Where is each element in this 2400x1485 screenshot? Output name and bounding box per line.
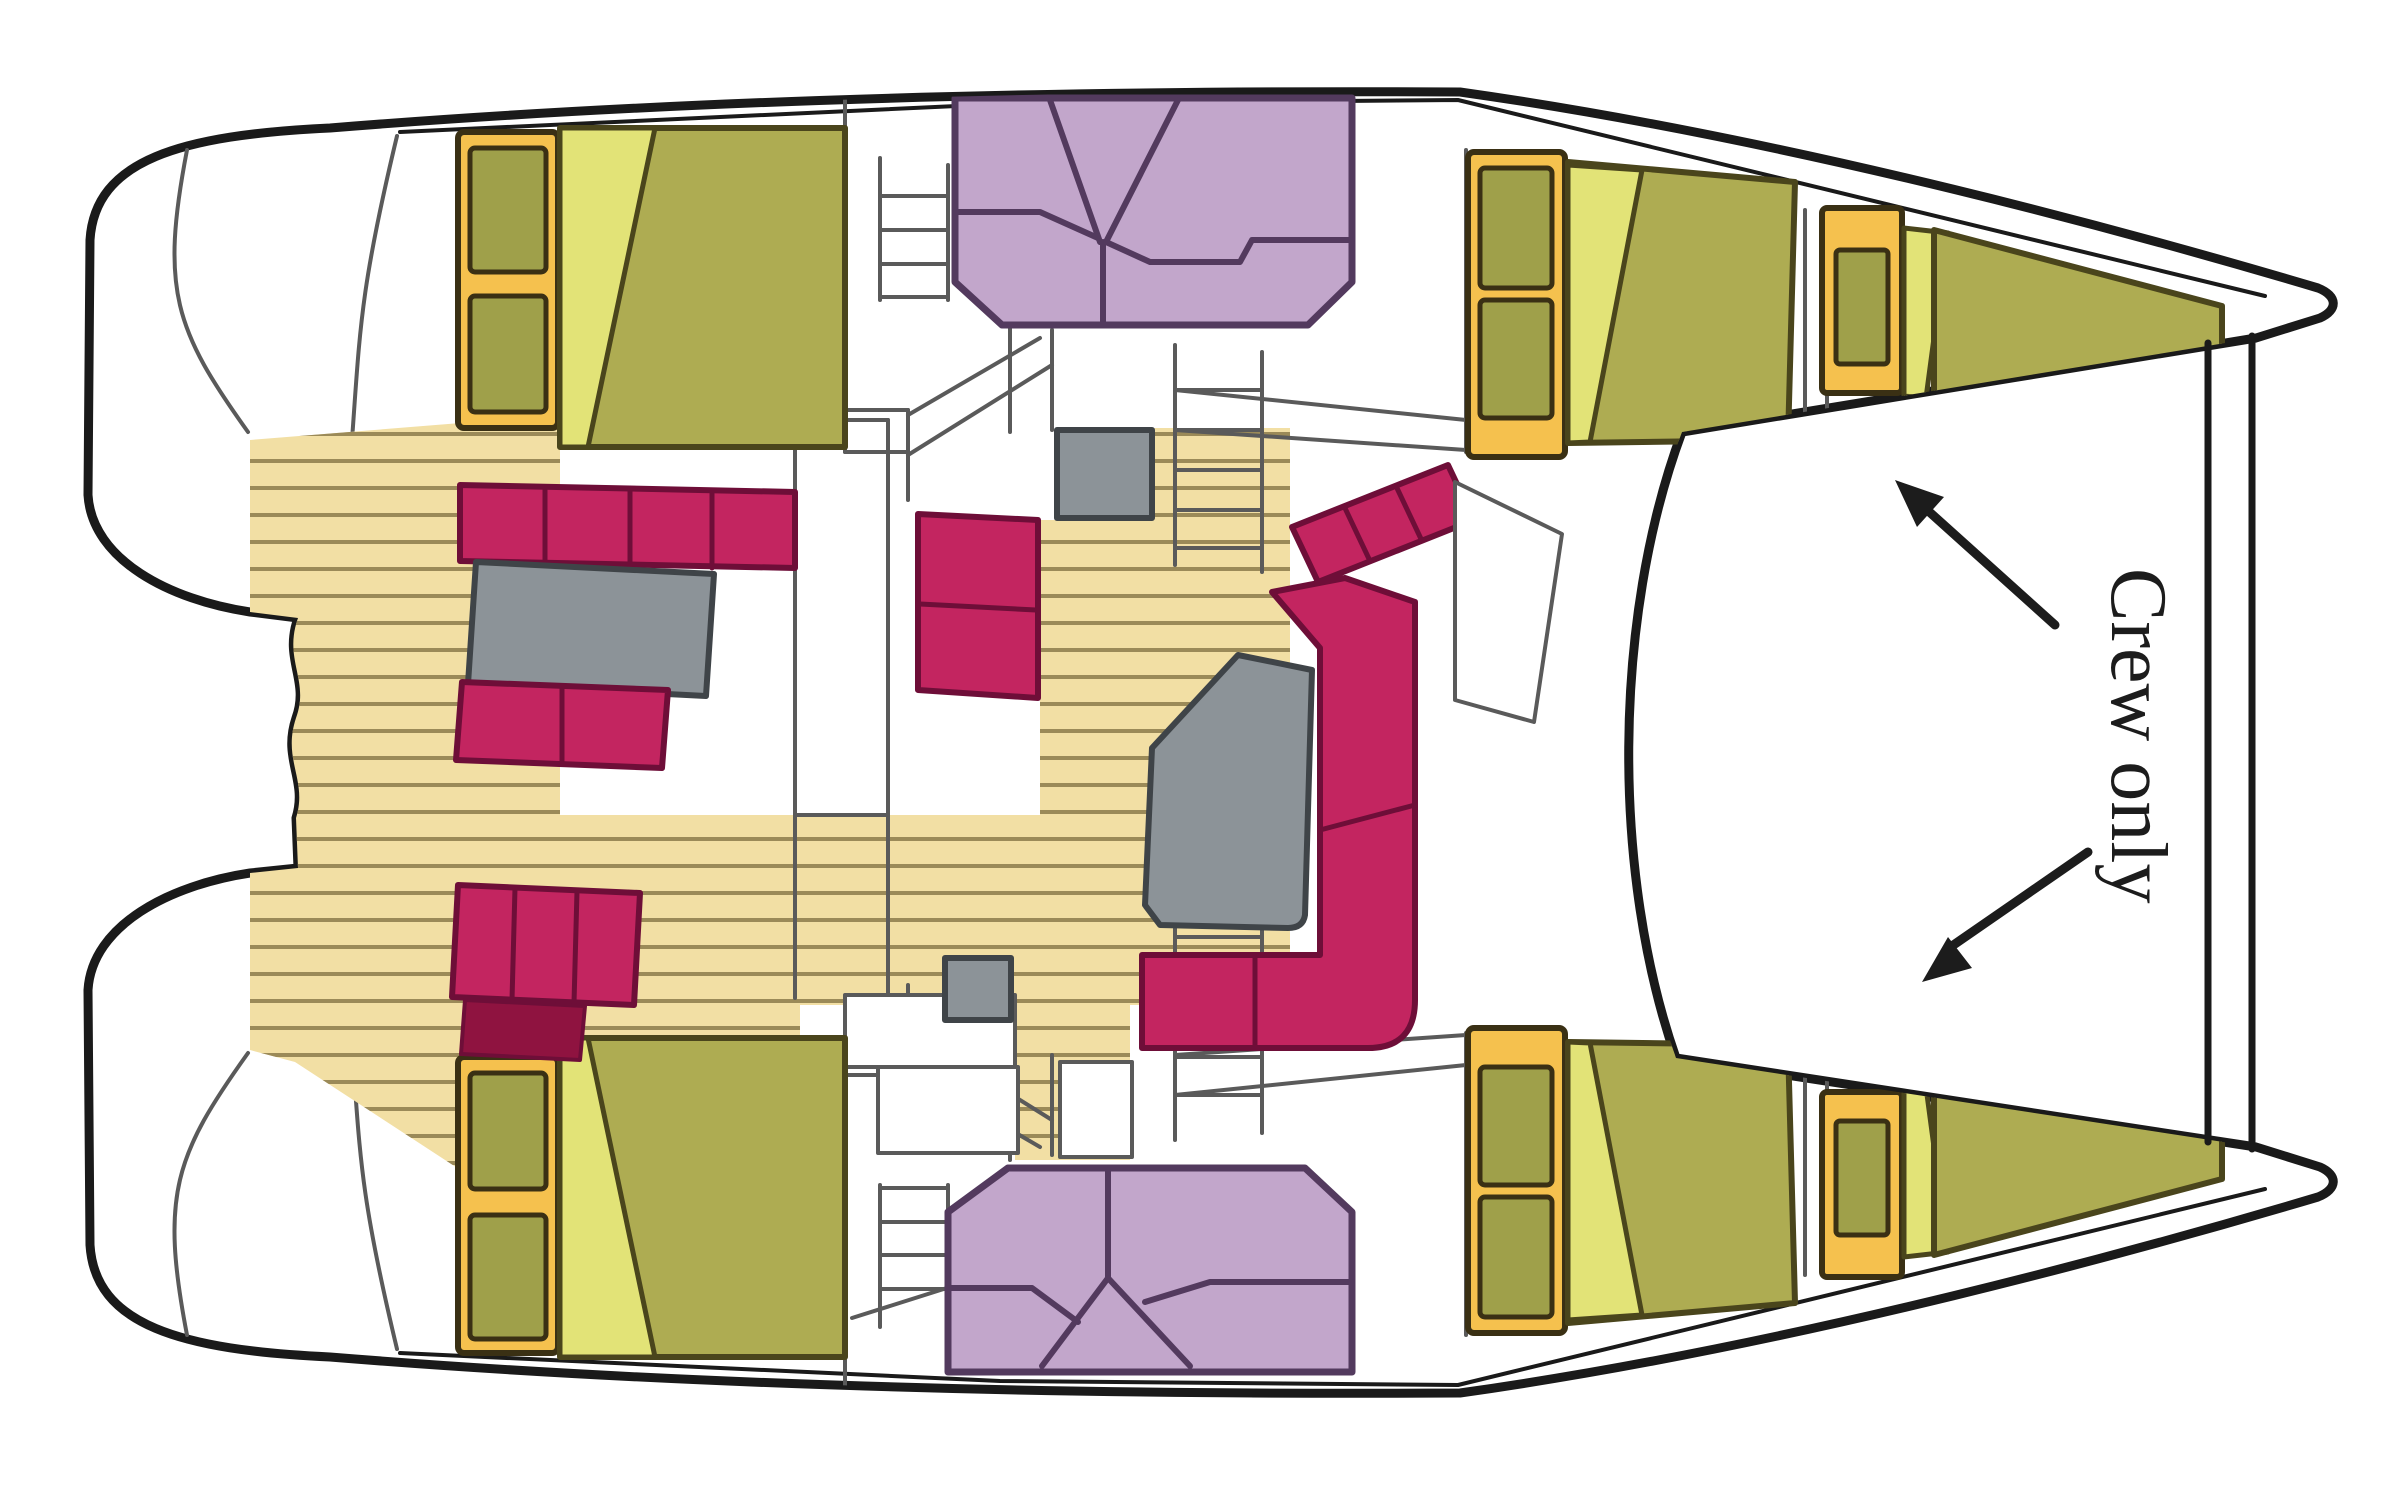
port-forward-cabin	[1468, 152, 1795, 457]
catamaran-floor-plan: Crew only	[0, 0, 2400, 1485]
arrow-to-starboard-bow-head	[1922, 937, 1972, 982]
saloon-bench-bottom	[452, 885, 640, 1005]
wardrobe-shelf-cushion	[1836, 1121, 1888, 1235]
arrow-to-starboard-bow	[1952, 852, 2088, 946]
wardrobe-shelf-cushion	[1480, 1197, 1552, 1317]
arrow-to-port-bow	[1925, 508, 2055, 625]
chart-table-top	[1057, 430, 1152, 518]
wardrobe-shelf-cushion	[1836, 250, 1888, 364]
wardrobe-shelf-cushion	[1480, 1067, 1552, 1185]
floor-plan-canvas: Crew only	[0, 0, 2400, 1485]
aft-lounge-seat	[955, 98, 1352, 325]
wardrobe-shelf-cushion	[470, 148, 546, 272]
wardrobe-shelf-cushion	[470, 296, 546, 412]
starboard-aft-cabin	[458, 1038, 845, 1357]
wardrobe-shelf-cushion	[1480, 168, 1552, 288]
port-aft-cabin	[458, 128, 845, 447]
forward-lounge-seat	[948, 1168, 1352, 1372]
wardrobe-shelf-cushion	[470, 1215, 546, 1339]
wardrobe-shelf-cushion	[1480, 300, 1552, 418]
chart-table-bottom	[945, 958, 1011, 1020]
crew-only-label: Crew only	[2094, 568, 2182, 904]
saloon-bench-front	[461, 1000, 585, 1060]
wardrobe-shelf-cushion	[470, 1073, 546, 1189]
saloon-table	[468, 562, 714, 696]
companionway-aisle	[795, 420, 888, 815]
starboard-forward-cabin	[1468, 1028, 1795, 1333]
crew-only-annotation: Crew only	[1895, 480, 2182, 982]
forward-crossbeam	[2208, 336, 2252, 1149]
